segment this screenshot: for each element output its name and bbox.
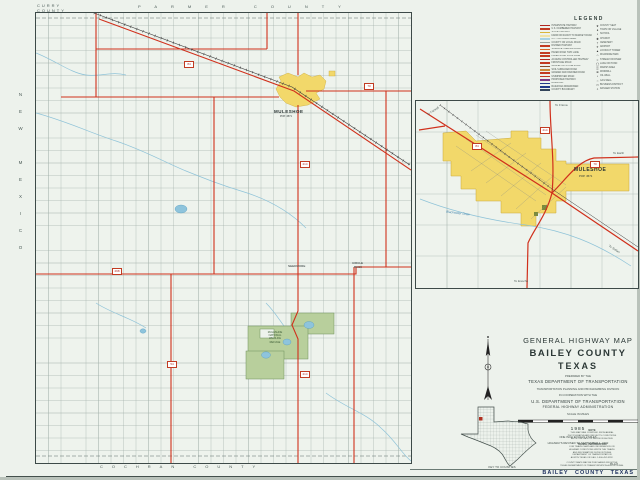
legend-swatch [540,89,550,91]
legend-label: UNIMPROVED ROAD [552,76,575,78]
legend-label: ACCESS CONTROLLED HIGHWAY [552,59,589,61]
note-line: AS OF THE DATE OF REVISION SHOWN. [546,438,638,441]
legend-label: RAILROAD ABANDONED [552,86,579,88]
legend-swatch [540,59,550,61]
inset-city-area [443,131,629,226]
legend-label: BUSINESS DISTRICT [600,84,623,86]
legend-label: OIL WELL [600,75,611,77]
sheet-bottom-rule [6,476,637,477]
legend-label: TOWN OR VILLAGE [600,29,621,31]
main-city-label: MULESHOE [274,109,304,114]
legend-label: SOIL SURFACED ROAD [552,69,578,71]
shield-us70: 70 [364,83,374,90]
legend-swatch [540,69,550,71]
shield-us84: 84 [184,61,194,68]
texas-key-map [458,406,544,468]
to-friona-label: To Friona [555,103,568,107]
shield-tx214: 214 [300,161,310,168]
main-county-map: MULESHOE POP. 4571 NEEDMORE CIRCLE BACK … [35,12,412,464]
legend-right-col: ★COUNTY SEAT●TOWN OR VILLAGE▪SCHOOL✚CHUR… [595,24,638,92]
legend-label: LAKE OR POND [600,63,617,65]
division-line: TRANSPORTATION PLANNING AND PROGRAMMING … [498,387,640,391]
refuge-label: MULESHOE NATIONAL WILDLIFE REFUGE [260,331,290,344]
prepared-by: PREPARED BY THE [498,374,640,378]
legend-swatch [540,28,550,30]
legend-swatch [540,38,550,40]
legend-left-col: INTERSTATE HIGHWAYU.S. NUMBERED HIGHWAYS… [540,24,595,92]
legend-label: RANGER STATION [600,88,620,90]
wildlife-refuge-area [246,313,334,379]
county-title: BAILEY COUNTY [498,348,640,359]
legend-label: SCHOOL [600,33,610,35]
legend-label: SURFACE TREATED ROAD [552,48,581,50]
notes-block: NOTE THIS MAP WAS COMPILED FROM AERIAL P… [546,427,638,468]
legend-swatch [540,45,550,47]
travel-line: AUSTIN TEXAS OR CALL 1-800-452-9292. [546,457,638,460]
legend-swatch [540,25,550,27]
legend-label: PROPOSED HIGHWAY [552,79,576,81]
state-title: TEXAS [498,361,640,371]
legend-label: COUNTY BOUNDARY [552,89,575,91]
legend-label: WINDMILL [600,71,611,73]
legend-label: INTERSTATE HIGHWAY [552,25,577,27]
legend-swatch [540,76,550,78]
footer-county-label: BAILEY COUNTY TEXAS [470,470,634,476]
shield-fm54: 54 [167,361,177,368]
legend-label: CEMETERY [600,42,613,44]
inset-shield-tx214: 214 [540,127,550,134]
inset-shield-us84: 84 [472,143,482,150]
inset-shield-us70: 70 [590,161,600,168]
refuge-line: REFUGE [260,341,290,344]
sheet-ref: 85-127 [610,463,618,466]
bailey-county-marker [479,417,483,421]
legend-label: GRAVEL OR STONE ROAD [552,65,581,67]
legend-label: FARM OR RANCH TO MARKET ROAD [552,35,592,37]
inset-park [534,212,538,216]
inset-canvas [416,101,638,288]
legend-label: COUNTY SEAT [600,25,616,27]
legend-label: CITY OR URBAN AREA [552,38,577,40]
legend-label: GAS WELL [600,80,612,82]
legend-swatch [540,72,550,74]
inset-city-label: MULESHOE [574,167,634,173]
legend-label: DIVIDED HIGHWAY [552,45,573,47]
legend-swatch [540,55,550,57]
usdot-line: U.S. DEPARTMENT OF TRANSPORTATION [498,399,640,404]
purchase-line: TEXAS DEPARTMENT OF TRANSPORTATION AUSTI… [546,465,638,468]
section-grid [36,13,411,463]
legend-swatch [540,66,550,68]
legend-swatch [540,79,550,81]
shield-fm298: 298 [112,268,122,275]
legend: LEGEND INTERSTATE HIGHWAYU.S. NUMBERED H… [540,16,638,100]
legend-title: LEGEND [540,16,638,22]
legend-label: CHURCH [600,38,610,40]
needmore-label: NEEDMORE [288,264,305,268]
legend-label: STREAM OR RIVER [600,59,621,61]
key-map-caption: KEY TO COUNTIES [462,465,542,469]
north-arrow [479,334,497,406]
coop-line: IN COOPERATION WITH THE [498,393,640,397]
edge-label-parmer-county: PARMER COUNTY [138,4,355,9]
legend-label: LOOKOUT TOWER [600,50,620,52]
muleshoe-inset-map: MULESHOE POP. 4571 Blackwater Draw To Fa… [415,100,639,289]
legend-label: AIRPORT [600,46,610,48]
edge-label-cochran-county: COCHRAN COUNTY [100,464,264,469]
legend-swatch [540,49,550,51]
muleshoe-city-area [276,71,335,107]
legend-label: PAVED ROAD TWO LANE [552,52,579,54]
legend-swatch [540,52,550,54]
map-title: GENERAL HIGHWAY MAP [498,336,640,345]
railroad [94,13,410,165]
legend-label: MARSH AREA [600,67,615,69]
legend-label: ROADSIDE PARK [600,54,619,56]
legend-swatch [540,42,550,44]
legend-entry: COUNTY BOUNDARY [540,88,595,91]
legend-label: FRONTAGE ROAD [552,62,572,64]
circle-back-label-2: BACK [354,265,362,269]
legend-swatch [540,35,550,37]
main-map-canvas [36,13,411,463]
dept-line: TEXAS DEPARTMENT OF TRANSPORTATION [498,379,640,384]
legend-swatch [540,32,550,34]
legend-entry: ⌖RANGER STATION [595,87,638,91]
edge-label-new-mexico: NEW MEXICO [18,92,23,262]
legend-label: COUNTY OR LOCAL ROAD [552,42,581,44]
legend-label: GRADED AND DRAINED ROAD [552,72,585,74]
main-city-pop: POP. 4571 [280,115,292,118]
to-enochs-label: To Enochs [514,279,528,283]
legend-swatch [540,86,550,88]
legend-label: RAILROAD [552,82,564,84]
legend-label: PAVED ROAD FOUR LANE [552,55,581,57]
legend-swatch [540,83,550,85]
shield-tx214-south: 214 [300,371,310,378]
inset-city-pop: POP. 4571 [579,174,592,178]
texas-outline [461,407,536,466]
legend-label: U.S. NUMBERED HIGHWAY [552,28,582,30]
legend-label: STATE HIGHWAY [552,31,570,33]
to-earth-label: To Earth [613,151,624,155]
legend-swatch [540,62,550,64]
